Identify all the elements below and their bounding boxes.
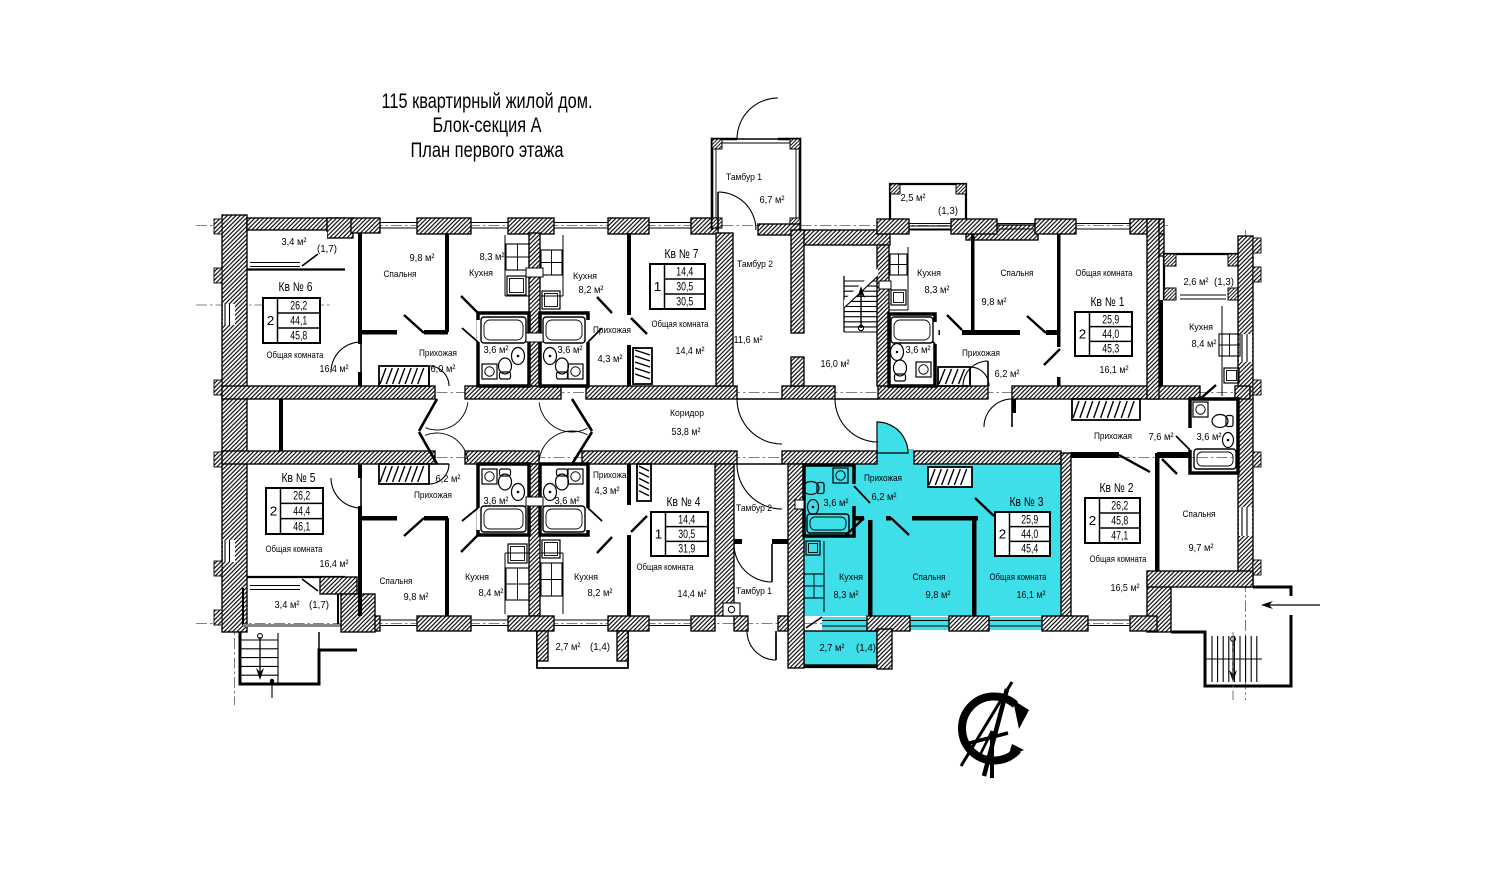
svg-text:3,6 м²: 3,6 м² (1197, 432, 1223, 443)
svg-text:Прихожая: Прихожая (864, 472, 902, 483)
svg-text:3,6 м²: 3,6 м² (555, 496, 581, 507)
svg-text:Спальня: Спальня (1183, 508, 1216, 519)
svg-text:2,7 м²: 2,7 м² (820, 643, 846, 654)
svg-text:3,6 м²: 3,6 м² (484, 345, 510, 356)
svg-text:2,6 м²: 2,6 м² (1184, 277, 1210, 288)
svg-text:2: 2 (1089, 513, 1097, 528)
svg-text:44,4: 44,4 (293, 506, 310, 518)
svg-text:8,3 м²: 8,3 м² (925, 285, 951, 296)
svg-text:2,7 м²: 2,7 м² (556, 642, 582, 653)
svg-text:16,4 м²: 16,4 м² (320, 364, 350, 375)
svg-text:Блок-секция А: Блок-секция А (433, 114, 542, 137)
svg-text:Кухня: Кухня (574, 571, 598, 582)
svg-text:46,1: 46,1 (293, 521, 310, 533)
svg-text:Тамбур 2: Тамбур 2 (736, 502, 772, 513)
svg-text:47,1: 47,1 (1111, 531, 1128, 543)
svg-text:Тамбур 1: Тамбур 1 (726, 171, 762, 182)
svg-text:Общая комната: Общая комната (266, 543, 324, 554)
svg-text:1: 1 (654, 279, 662, 294)
svg-text:14,4 м²: 14,4 м² (678, 589, 708, 600)
svg-text:Общая комната: Общая комната (267, 349, 325, 360)
svg-text:(1,3): (1,3) (1214, 277, 1234, 288)
svg-text:2,5 м²: 2,5 м² (901, 193, 927, 204)
svg-text:Общая комната: Общая комната (1076, 267, 1134, 278)
svg-text:Кухня: Кухня (839, 571, 863, 582)
svg-text:45,4: 45,4 (1021, 544, 1038, 556)
svg-text:8,3 м²: 8,3 м² (834, 590, 860, 601)
svg-text:53,8 м²: 53,8 м² (672, 427, 702, 438)
svg-text:Общая комната: Общая комната (990, 571, 1048, 582)
svg-text:2: 2 (1079, 327, 1087, 342)
svg-text:Спальня: Спальня (1001, 267, 1034, 278)
svg-text:(1,4): (1,4) (856, 643, 876, 654)
svg-text:Прихожая: Прихожая (593, 324, 631, 335)
svg-text:Прихожая: Прихожая (962, 347, 1000, 358)
svg-text:44,0: 44,0 (1021, 529, 1038, 541)
svg-text:Кв № 5: Кв № 5 (282, 471, 316, 485)
svg-text:9,7 м²: 9,7 м² (1189, 543, 1215, 554)
svg-text:8,4 м²: 8,4 м² (479, 588, 505, 599)
svg-text:1: 1 (655, 527, 663, 542)
svg-text:4,3 м²: 4,3 м² (595, 486, 621, 497)
svg-text:6,2 м²: 6,2 м² (995, 369, 1021, 380)
svg-text:(1,3): (1,3) (938, 206, 958, 217)
svg-text:9,8 м²: 9,8 м² (982, 297, 1008, 308)
svg-text:Тамбур 1: Тамбур 1 (736, 585, 772, 596)
svg-text:45,8: 45,8 (290, 331, 307, 343)
svg-text:Прихожая: Прихожая (414, 489, 452, 500)
svg-text:Тамбур 2: Тамбур 2 (737, 258, 773, 269)
svg-text:6,0 м²: 6,0 м² (431, 364, 457, 375)
svg-text:Кухня: Кухня (1189, 321, 1213, 332)
svg-text:Прихожая: Прихожая (419, 347, 457, 358)
svg-text:3,6 м²: 3,6 м² (558, 345, 584, 356)
svg-text:2: 2 (267, 313, 275, 328)
svg-text:Общая комната: Общая комната (637, 561, 695, 572)
svg-text:3,4 м²: 3,4 м² (282, 237, 308, 248)
svg-text:9,8 м²: 9,8 м² (404, 592, 430, 603)
svg-text:6,2 м²: 6,2 м² (436, 474, 462, 485)
svg-text:16,4 м²: 16,4 м² (320, 559, 350, 570)
svg-text:16,5 м²: 16,5 м² (1111, 583, 1141, 594)
svg-text:45,3: 45,3 (1102, 344, 1119, 356)
svg-text:Общая комната: Общая комната (1090, 553, 1148, 564)
svg-text:25,9: 25,9 (1021, 514, 1038, 526)
svg-text:45,8: 45,8 (1111, 516, 1128, 528)
svg-text:25,9: 25,9 (1102, 314, 1119, 326)
svg-text:14,4: 14,4 (676, 267, 693, 279)
svg-text:Спальня: Спальня (384, 268, 417, 279)
svg-text:Кв № 3: Кв № 3 (1010, 495, 1044, 509)
svg-text:Кв № 7: Кв № 7 (665, 247, 699, 261)
svg-text:16,1 м²: 16,1 м² (1017, 590, 1047, 601)
svg-text:План первого этажа: План первого этажа (411, 139, 564, 162)
svg-text:2: 2 (270, 504, 278, 519)
svg-text:4,3 м²: 4,3 м² (598, 354, 624, 365)
svg-text:9,8 м²: 9,8 м² (926, 590, 952, 601)
svg-text:Прихожая: Прихожая (1094, 430, 1132, 441)
svg-text:2: 2 (999, 527, 1007, 542)
svg-text:Кухня: Кухня (573, 270, 597, 281)
svg-text:3,4 м²: 3,4 м² (275, 600, 301, 611)
svg-text:Кв № 1: Кв № 1 (1091, 295, 1125, 309)
svg-text:11,6 м²: 11,6 м² (734, 335, 764, 346)
svg-text:8,2 м²: 8,2 м² (588, 588, 614, 599)
svg-text:7,6 м²: 7,6 м² (1149, 432, 1175, 443)
svg-text:3,6 м²: 3,6 м² (824, 498, 850, 509)
svg-text:30,5: 30,5 (678, 529, 695, 541)
svg-text:26,2: 26,2 (290, 301, 307, 313)
svg-text:30,5: 30,5 (676, 297, 693, 309)
svg-text:115 квартирный жилой дом.: 115 квартирный жилой дом. (382, 90, 593, 113)
svg-text:3,6 м²: 3,6 м² (906, 345, 932, 356)
svg-text:Кухня: Кухня (465, 571, 489, 582)
svg-text:Кв № 4: Кв № 4 (667, 495, 701, 509)
svg-text:Кв № 2: Кв № 2 (1100, 481, 1134, 495)
svg-text:8,2 м²: 8,2 м² (579, 285, 605, 296)
svg-text:26,2: 26,2 (1111, 501, 1128, 513)
svg-text:31,9: 31,9 (678, 544, 695, 556)
svg-text:Кухня: Кухня (469, 267, 493, 278)
svg-text:30,5: 30,5 (676, 282, 693, 294)
svg-text:Спальня: Спальня (913, 571, 946, 582)
svg-text:Кв № 6: Кв № 6 (279, 280, 313, 294)
svg-text:6,7 м²: 6,7 м² (760, 195, 786, 206)
svg-text:3,6 м²: 3,6 м² (484, 496, 510, 507)
svg-text:16,1 м²: 16,1 м² (1100, 365, 1130, 376)
svg-text:Коридор: Коридор (670, 407, 704, 418)
svg-text:6,2 м²: 6,2 м² (872, 492, 898, 503)
svg-text:(1,4): (1,4) (590, 642, 610, 653)
svg-text:Спальня: Спальня (380, 575, 413, 586)
svg-text:9,8 м²: 9,8 м² (410, 253, 436, 264)
svg-text:8,4 м²: 8,4 м² (1192, 339, 1218, 350)
svg-text:8,3 м²: 8,3 м² (480, 252, 506, 263)
svg-text:26,2: 26,2 (293, 491, 310, 503)
svg-text:44,0: 44,0 (1102, 329, 1119, 341)
svg-text:Общая комната: Общая комната (652, 318, 710, 329)
svg-text:16,0 м²: 16,0 м² (821, 359, 851, 370)
svg-text:(1,7): (1,7) (309, 600, 329, 611)
svg-text:44,1: 44,1 (290, 316, 307, 328)
svg-text:14,4 м²: 14,4 м² (676, 346, 706, 357)
svg-text:14,4: 14,4 (678, 514, 695, 526)
svg-text:Кухня: Кухня (917, 267, 941, 278)
svg-text:(1,7): (1,7) (317, 244, 337, 255)
svg-text:Прихожая: Прихожая (593, 469, 631, 480)
